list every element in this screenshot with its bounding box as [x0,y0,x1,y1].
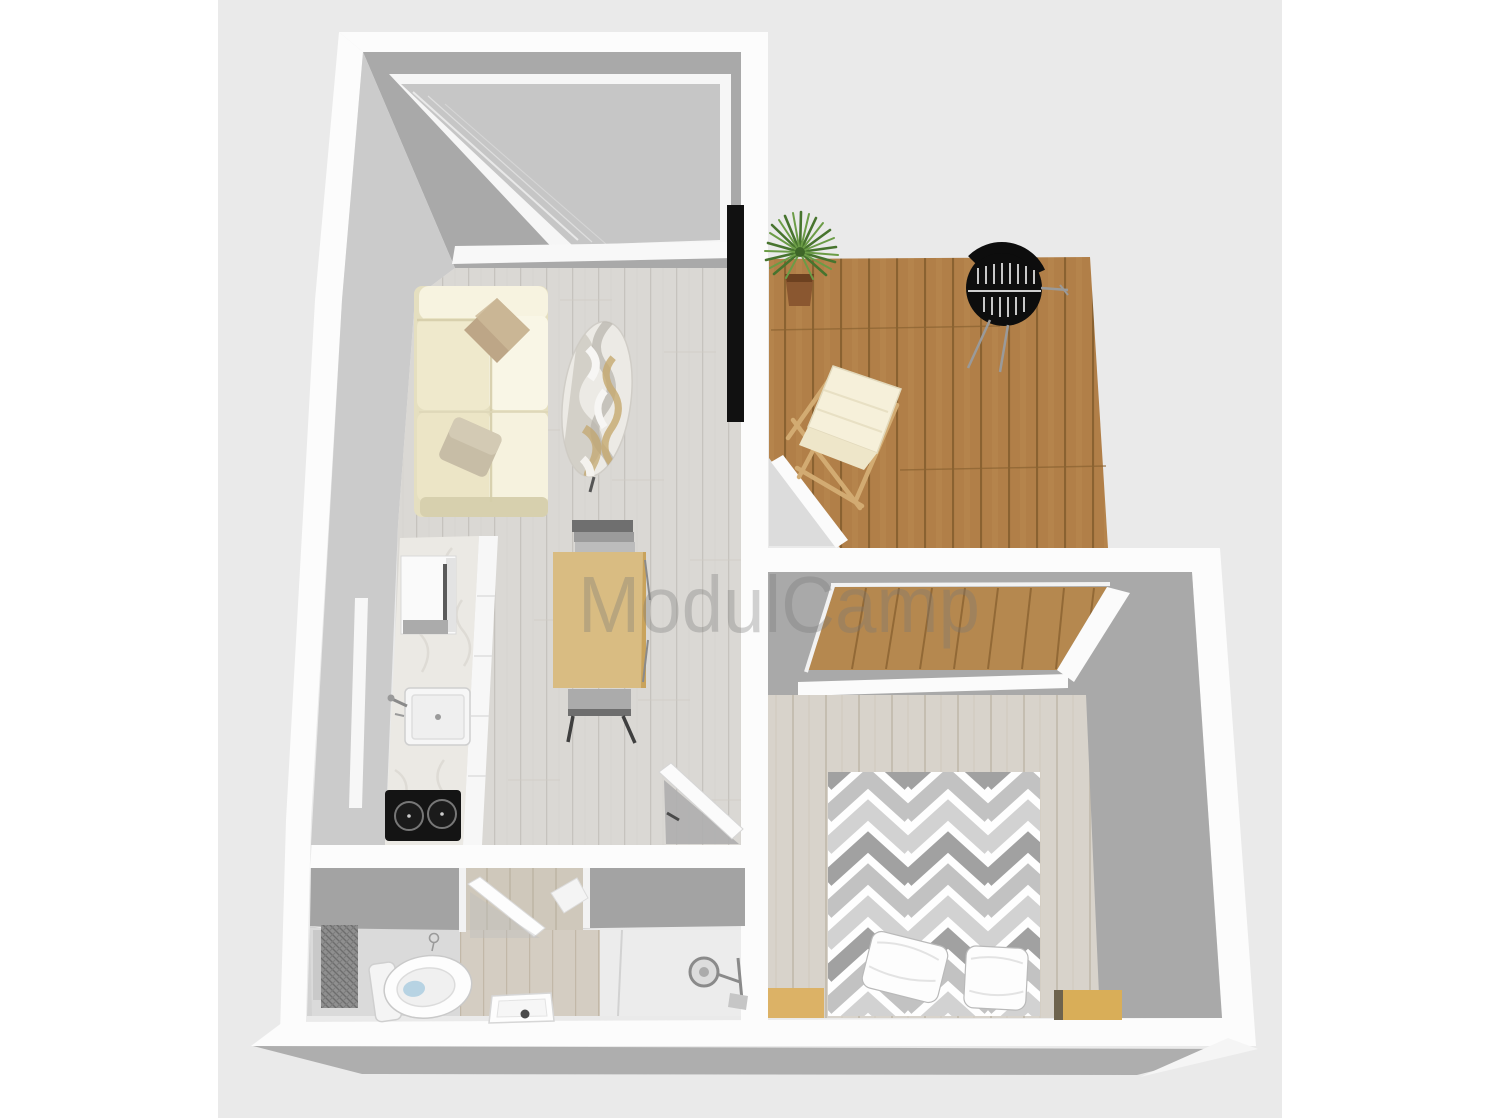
svg-text:ModulCamp: ModulCamp [578,560,980,649]
